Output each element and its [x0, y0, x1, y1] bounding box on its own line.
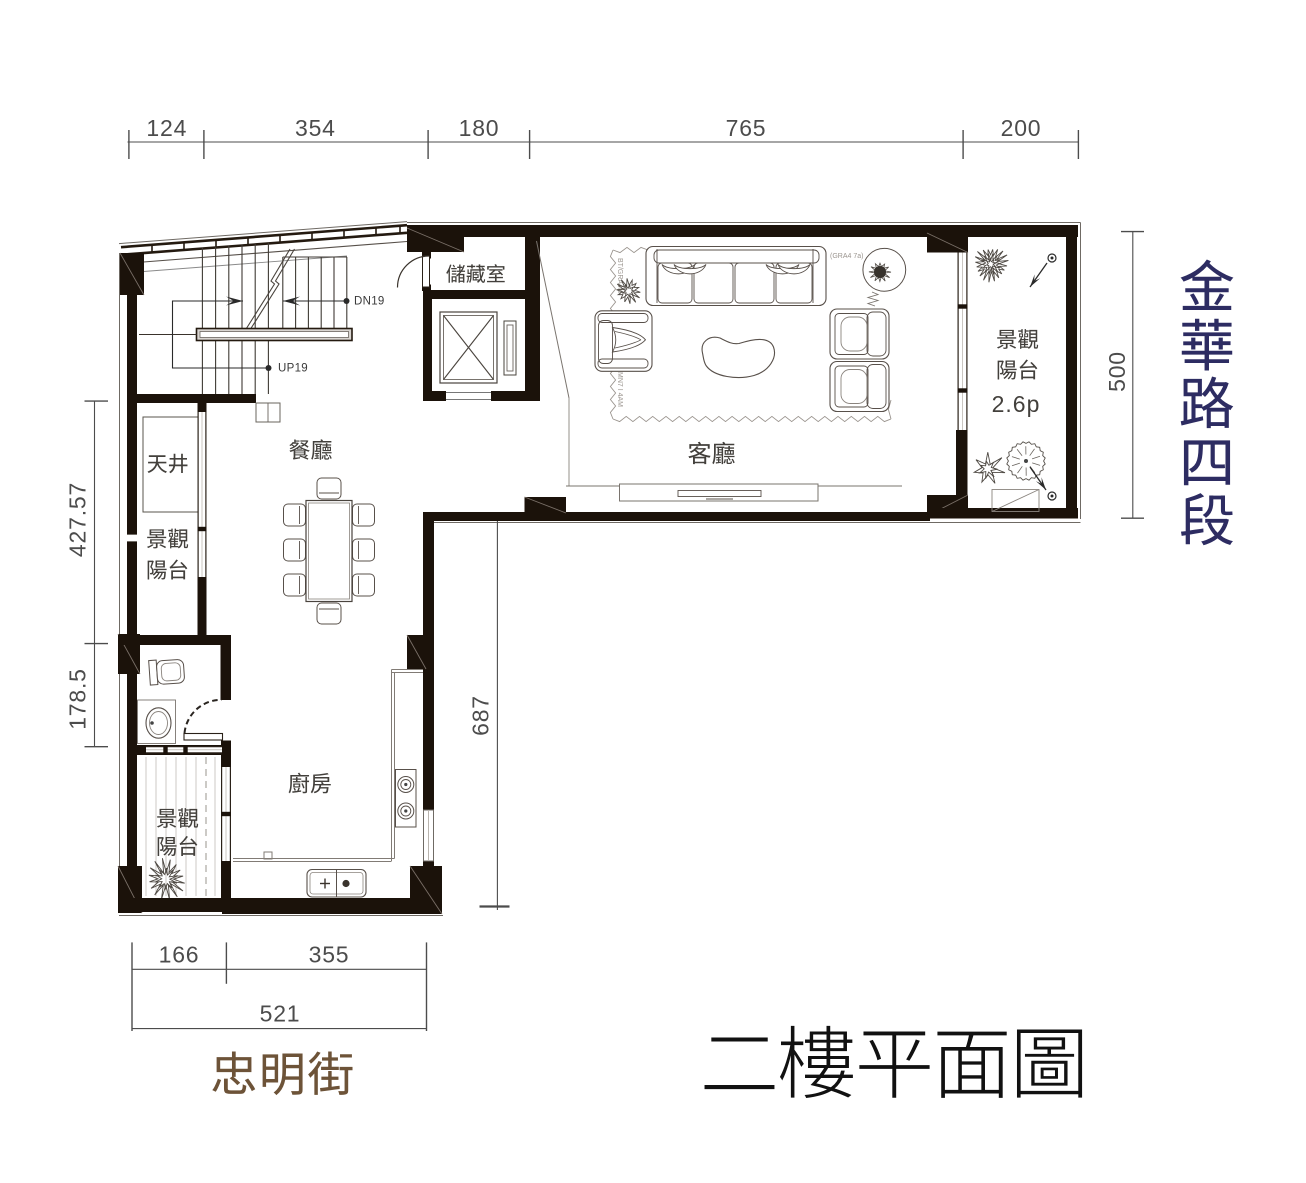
svg-text:200: 200	[1001, 115, 1042, 141]
svg-text:124: 124	[146, 115, 187, 141]
svg-text:178.5: 178.5	[65, 668, 91, 730]
svg-text:765: 765	[726, 115, 767, 141]
svg-text:DN19: DN19	[354, 296, 385, 308]
svg-text:166: 166	[159, 942, 200, 968]
svg-text:180: 180	[459, 115, 500, 141]
svg-text:UP19: UP19	[278, 363, 308, 375]
svg-text:(GRA4 7a): (GRA4 7a)	[830, 253, 863, 260]
svg-text:MN7 I 4AM: MN7 I 4AM	[616, 372, 623, 407]
svg-text:2.6p: 2.6p	[992, 391, 1041, 417]
svg-text:355: 355	[309, 942, 350, 968]
svg-text:687: 687	[468, 695, 494, 736]
svg-text:521: 521	[260, 1001, 301, 1027]
svg-text:500: 500	[1104, 351, 1130, 392]
svg-text:354: 354	[295, 115, 336, 141]
svg-text:427.57: 427.57	[65, 482, 91, 557]
